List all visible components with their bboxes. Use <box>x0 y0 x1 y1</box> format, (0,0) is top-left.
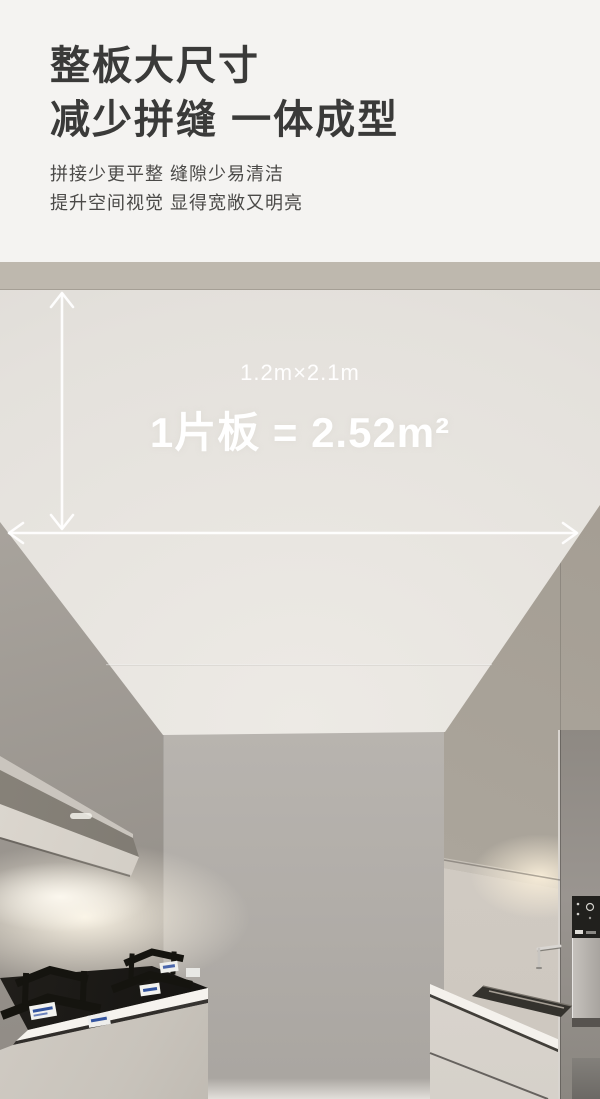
subtitle-line-1: 拼接少更平整 缝隙少易清洁 <box>50 160 600 189</box>
title-line-1: 整板大尺寸 <box>50 39 600 93</box>
page-subtitle: 拼接少更平整 缝隙少易清洁 提升空间视觉 显得宽敞又明亮 <box>50 160 600 218</box>
promo-page: 整板大尺寸 减少拼缝 一体成型 拼接少更平整 缝隙少易清洁 提升空间视觉 显得宽… <box>0 0 600 1099</box>
dimension-arrows <box>0 262 600 1099</box>
panel-area-label: 1片板 = 2.52m² <box>0 399 600 460</box>
header-section: 整板大尺寸 减少拼缝 一体成型 拼接少更平整 缝隙少易清洁 提升空间视觉 显得宽… <box>0 0 600 262</box>
horizontal-dimension-arrow <box>9 523 577 543</box>
subtitle-line-2: 提升空间视觉 显得宽敞又明亮 <box>50 189 600 218</box>
panel-dimension-label: 1.2m×2.1m <box>0 360 600 386</box>
page-title: 整板大尺寸 减少拼缝 一体成型 <box>50 39 600 147</box>
title-line-2: 减少拼缝 一体成型 <box>50 93 600 147</box>
kitchen-ceiling-photo: 1.2m×2.1m 1片板 = 2.52m² <box>0 262 600 1099</box>
